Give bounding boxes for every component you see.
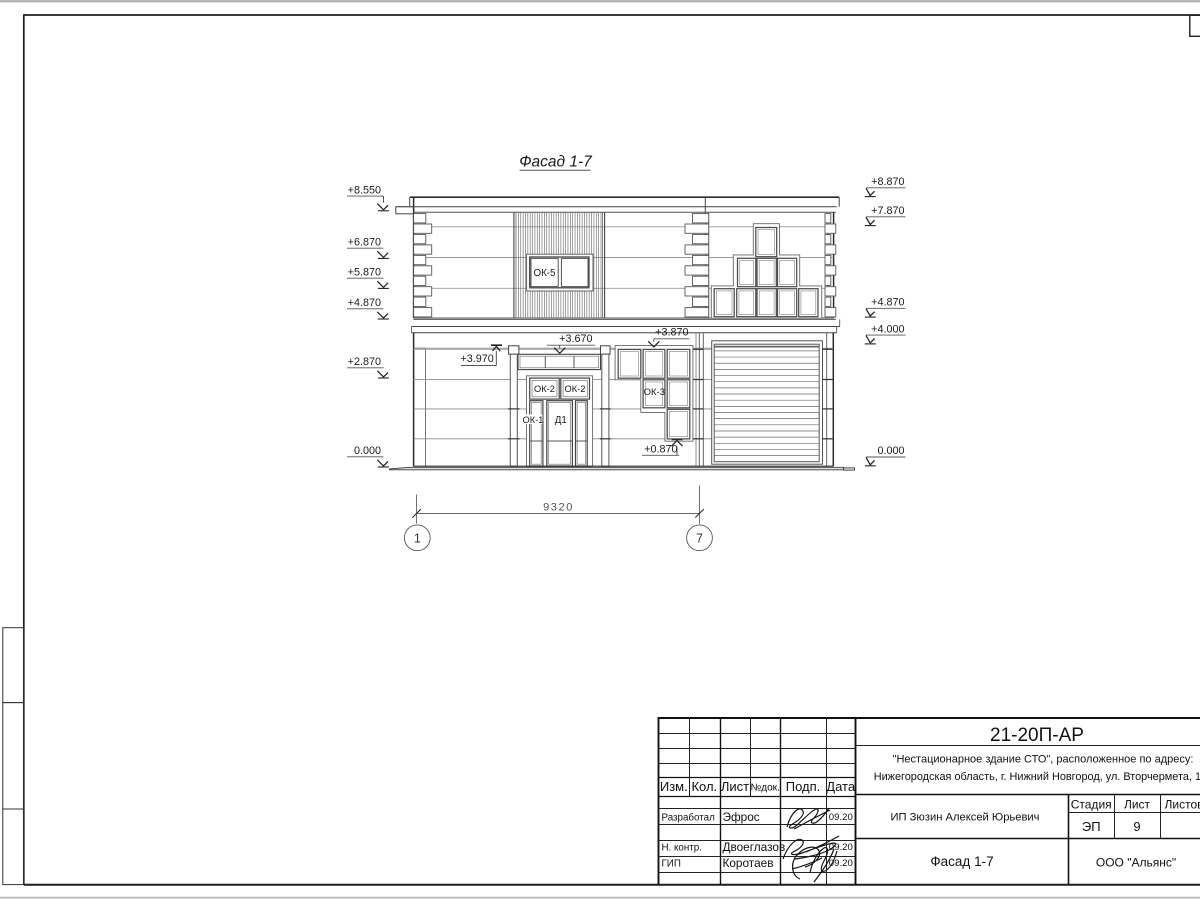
svg-text:+7.870: +7.870 [871, 205, 904, 217]
svg-text:+6.870: +6.870 [348, 237, 381, 249]
svg-text:Лист: Лист [1124, 798, 1151, 812]
svg-text:Разработал: Разработал [662, 813, 716, 824]
svg-text:09.20: 09.20 [829, 812, 853, 823]
svg-text:+3.670: +3.670 [559, 333, 592, 345]
svg-text:Коротаев: Коротаев [723, 856, 774, 870]
svg-text:ОК-3: ОК-3 [644, 387, 665, 398]
svg-text:Подп.: Подп. [786, 779, 821, 794]
svg-text:Изм.: Изм. [660, 779, 688, 794]
svg-text:Дата: Дата [826, 779, 856, 794]
svg-text:ОК-1: ОК-1 [523, 415, 544, 425]
svg-text:Кол.: Кол. [691, 779, 717, 794]
svg-text:9: 9 [1133, 819, 1140, 834]
svg-text:+4.870: +4.870 [348, 297, 381, 309]
svg-text:Эфрос: Эфрос [723, 810, 760, 824]
svg-text:№док.: №док. [751, 782, 780, 793]
svg-text:0.000: 0.000 [354, 445, 381, 457]
svg-text:ГИП: ГИП [662, 859, 681, 870]
svg-text:Д1: Д1 [555, 415, 567, 426]
svg-text:1: 1 [414, 531, 421, 545]
svg-text:Листов: Листов [1165, 798, 1200, 812]
svg-text:Двоеглазов: Двоеглазов [723, 840, 786, 854]
svg-text:"Нестационарное здание СТО", р: "Нестационарное здание СТО", расположенн… [893, 754, 1194, 766]
svg-text:ОК-2: ОК-2 [534, 384, 555, 394]
svg-text:+4.870: +4.870 [871, 297, 904, 309]
svg-text:+4.000: +4.000 [871, 323, 904, 335]
svg-text:9320: 9320 [543, 502, 574, 514]
svg-text:+3.970: +3.970 [460, 353, 493, 365]
svg-text:+5.870: +5.870 [348, 267, 381, 279]
svg-text:Нижегородская область, г. Нижн: Нижегородская область, г. Нижний Новгоро… [874, 771, 1200, 783]
svg-text:Лист: Лист [721, 779, 749, 794]
svg-text:ООО "Альянс": ООО "Альянс" [1096, 856, 1176, 870]
svg-text:ИП Зюзин Алексей Юрьевич: ИП Зюзин Алексей Юрьевич [890, 812, 1039, 824]
svg-text:Н. контр.: Н. контр. [662, 843, 702, 854]
svg-text:7: 7 [696, 531, 703, 545]
svg-text:ОК-5: ОК-5 [533, 268, 556, 279]
svg-text:Фасад 1-7: Фасад 1-7 [930, 854, 993, 869]
svg-text:ЭП: ЭП [1082, 819, 1101, 834]
svg-text:0.000: 0.000 [877, 445, 904, 457]
svg-text:+3.870: +3.870 [655, 327, 688, 339]
svg-text:Стадия: Стадия [1071, 798, 1112, 812]
svg-text:+8.870: +8.870 [871, 176, 904, 188]
svg-text:Фасад 1-7: Фасад 1-7 [519, 154, 593, 171]
svg-text:+8.550: +8.550 [348, 185, 381, 197]
svg-text:+2.870: +2.870 [348, 356, 381, 368]
svg-text:ОК-2: ОК-2 [565, 384, 586, 394]
svg-text:21-20П-АР: 21-20П-АР [990, 725, 1084, 746]
